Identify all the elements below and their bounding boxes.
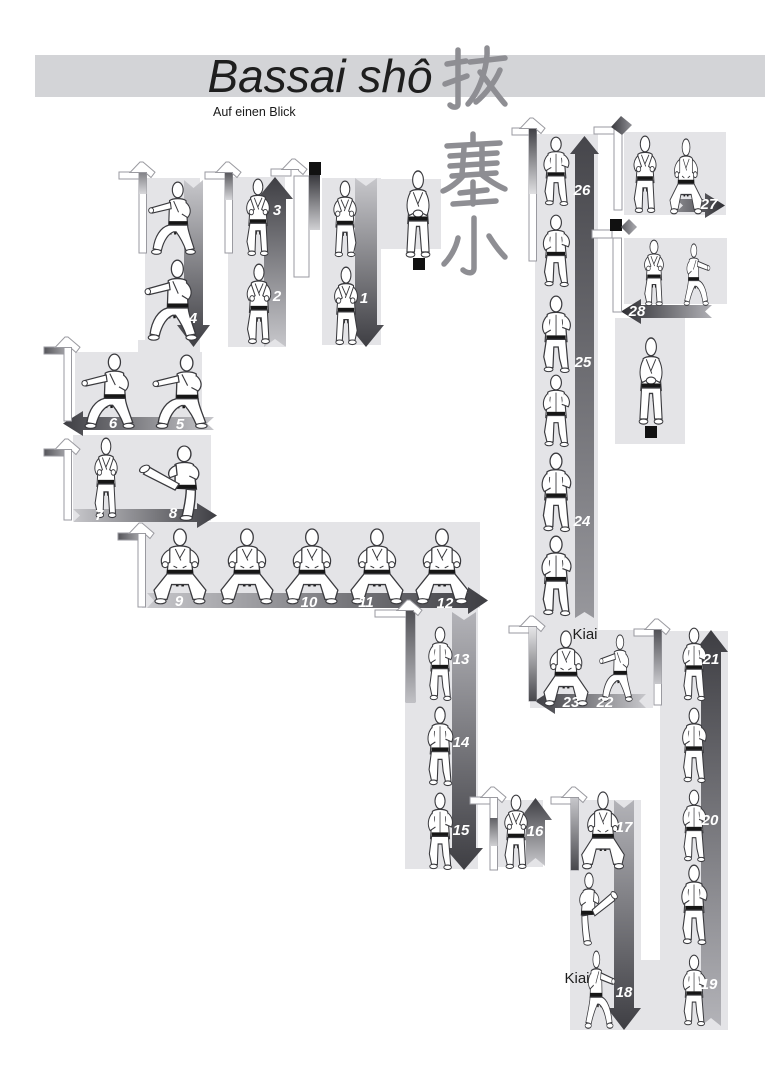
svg-text:Bassai shô: Bassai shô: [207, 50, 432, 102]
svg-text:25: 25: [574, 354, 592, 371]
svg-text:Kiai: Kiai: [564, 970, 589, 987]
svg-text:1: 1: [360, 290, 368, 307]
svg-text:15: 15: [453, 822, 470, 839]
svg-text:4: 4: [188, 310, 198, 327]
svg-text:12: 12: [437, 595, 454, 612]
svg-text:3: 3: [273, 202, 282, 219]
svg-text:20: 20: [701, 812, 719, 829]
svg-text:Auf einen Blick: Auf einen Blick: [213, 105, 296, 119]
svg-text:16: 16: [527, 823, 544, 840]
svg-text:26: 26: [573, 182, 591, 199]
svg-text:23: 23: [562, 694, 580, 711]
svg-text:11: 11: [358, 594, 374, 611]
svg-text:13: 13: [453, 651, 470, 668]
svg-text:8: 8: [169, 505, 178, 522]
svg-text:7: 7: [95, 507, 104, 524]
svg-text:18: 18: [616, 984, 633, 1001]
svg-text:19: 19: [701, 976, 718, 993]
svg-text:Kiai: Kiai: [572, 626, 597, 643]
svg-text:2: 2: [272, 288, 282, 305]
svg-text:14: 14: [453, 734, 470, 751]
svg-text:10: 10: [301, 594, 318, 611]
svg-text:9: 9: [175, 593, 184, 610]
svg-text:17: 17: [616, 819, 633, 836]
svg-text:24: 24: [573, 513, 591, 530]
svg-text:27: 27: [700, 196, 718, 213]
svg-text:5: 5: [176, 416, 185, 433]
svg-text:22: 22: [596, 694, 614, 711]
svg-text:6: 6: [109, 415, 118, 432]
svg-text:21: 21: [702, 651, 720, 668]
svg-text:28: 28: [628, 303, 646, 320]
